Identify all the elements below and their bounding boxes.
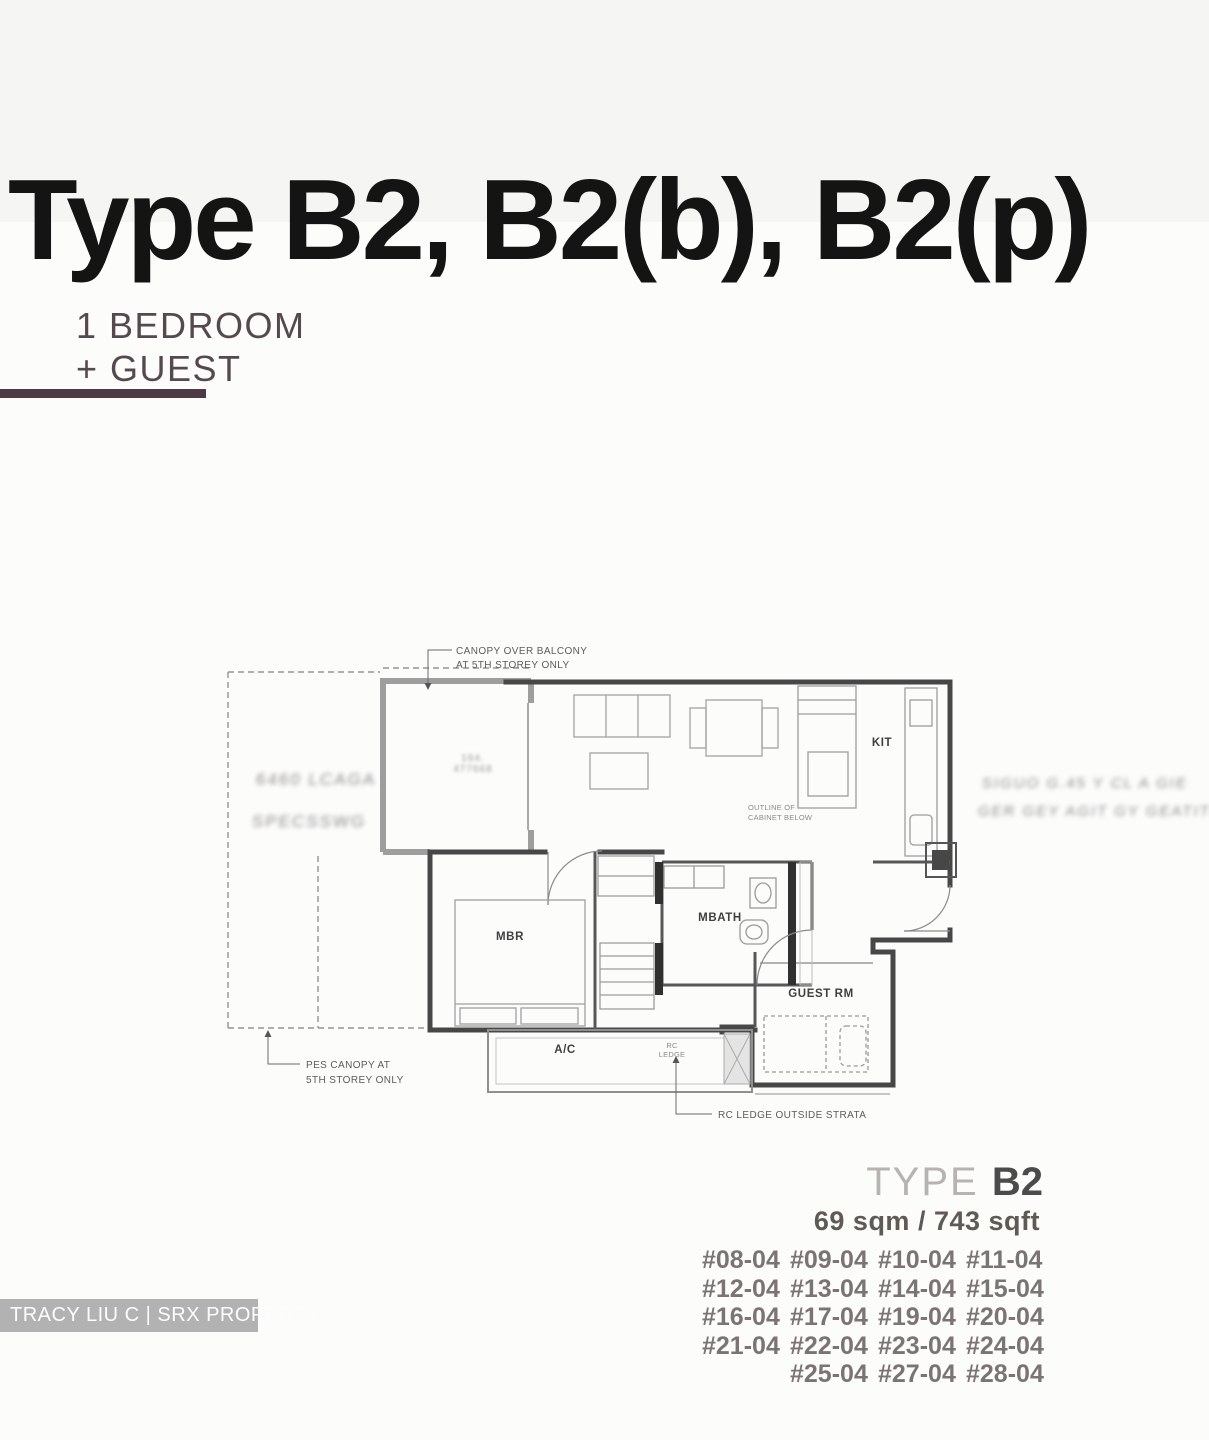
unit-number: #22-04 xyxy=(790,1332,878,1361)
rc-outside-annotation: RC LEDGE OUTSIDE STRATA xyxy=(718,1110,866,1121)
kitchen-counters xyxy=(798,686,937,856)
rc-ledge-label-line1: RC xyxy=(666,1041,678,1050)
agent-watermark: TRACY LIU C | SRX PROPERTY xyxy=(0,1299,258,1332)
master-bedroom-label: MBR xyxy=(496,931,524,943)
guest-bed-dashed xyxy=(764,1016,868,1072)
canopy-annotation-line1: CANOPY OVER BALCONY xyxy=(456,646,587,657)
annotation-arrowheads xyxy=(265,683,680,1063)
wardrobe-closet xyxy=(598,856,654,1009)
area-info: 69 sqm / 743 sqft xyxy=(643,1206,1040,1237)
unit-number: #19-04 xyxy=(878,1303,966,1332)
unit-number: #15-04 xyxy=(966,1275,1054,1304)
unit-number: #28-04 xyxy=(966,1360,1054,1389)
type-label: TYPE xyxy=(866,1160,978,1204)
unit-number: #23-04 xyxy=(878,1332,966,1361)
annotation-leaders xyxy=(268,650,712,1114)
unit-number: #13-04 xyxy=(790,1275,878,1304)
guest-room-label: GUEST RM xyxy=(788,988,854,1000)
pes-dashed-boundary xyxy=(228,668,531,1028)
unit-number: #14-04 xyxy=(878,1275,966,1304)
master-bath-label: MBATH xyxy=(698,912,742,924)
cabinet-annotation-line1: OUTLINE OF xyxy=(748,803,795,812)
master-bed xyxy=(455,900,585,1026)
pes-annotation-line1: PES CANOPY AT xyxy=(306,1060,390,1071)
living-dining-furniture xyxy=(574,695,778,789)
blurred-stamp-right-line1: SIGUO G.45 Y CL A GIE xyxy=(981,775,1188,792)
blurred-stamp-left-line1: 6460 LCAGA xyxy=(255,770,377,790)
blurred-stamp-right-line2: GER GEY AGIT GY GEATITL xyxy=(977,803,1209,820)
ac-ledge-label: A/C xyxy=(554,1044,576,1056)
unit-numbers-grid: #08-04 #09-04 #10-04 #11-04 #12-04 #13-0… xyxy=(702,1246,1054,1389)
unit-number: #11-04 xyxy=(966,1246,1054,1275)
unit-number: #16-04 xyxy=(702,1303,790,1332)
rc-ledge-label-line2: LEDGE xyxy=(659,1050,685,1059)
blurred-balcony-text: 164. 477668 xyxy=(438,753,508,775)
cabinet-annotation-line2: CABINET BELOW xyxy=(748,813,813,822)
unit-number: #25-04 xyxy=(790,1360,878,1389)
unit-number: #09-04 xyxy=(790,1246,878,1275)
type-value: B2 xyxy=(992,1160,1043,1204)
unit-number: #24-04 xyxy=(966,1332,1054,1361)
unit-number: #10-04 xyxy=(878,1246,966,1275)
unit-number: #21-04 xyxy=(702,1332,790,1361)
unit-number: #17-04 xyxy=(790,1303,878,1332)
unit-number: #27-04 xyxy=(878,1360,966,1389)
unit-number: #08-04 xyxy=(702,1246,790,1275)
kitchen-label: KIT xyxy=(872,737,892,749)
unit-number xyxy=(702,1360,790,1389)
blurred-stamp-left-line2: SPECSSWG xyxy=(251,812,367,832)
canopy-annotation-line2: AT 5TH STOREY ONLY xyxy=(456,660,570,671)
doors xyxy=(548,851,950,985)
unit-number: #20-04 xyxy=(966,1303,1054,1332)
wall-stubs xyxy=(655,862,796,995)
unit-number: #12-04 xyxy=(702,1275,790,1304)
pes-annotation-line2: 5TH STOREY ONLY xyxy=(306,1075,404,1086)
type-info: TYPE B2 xyxy=(643,1160,1043,1205)
